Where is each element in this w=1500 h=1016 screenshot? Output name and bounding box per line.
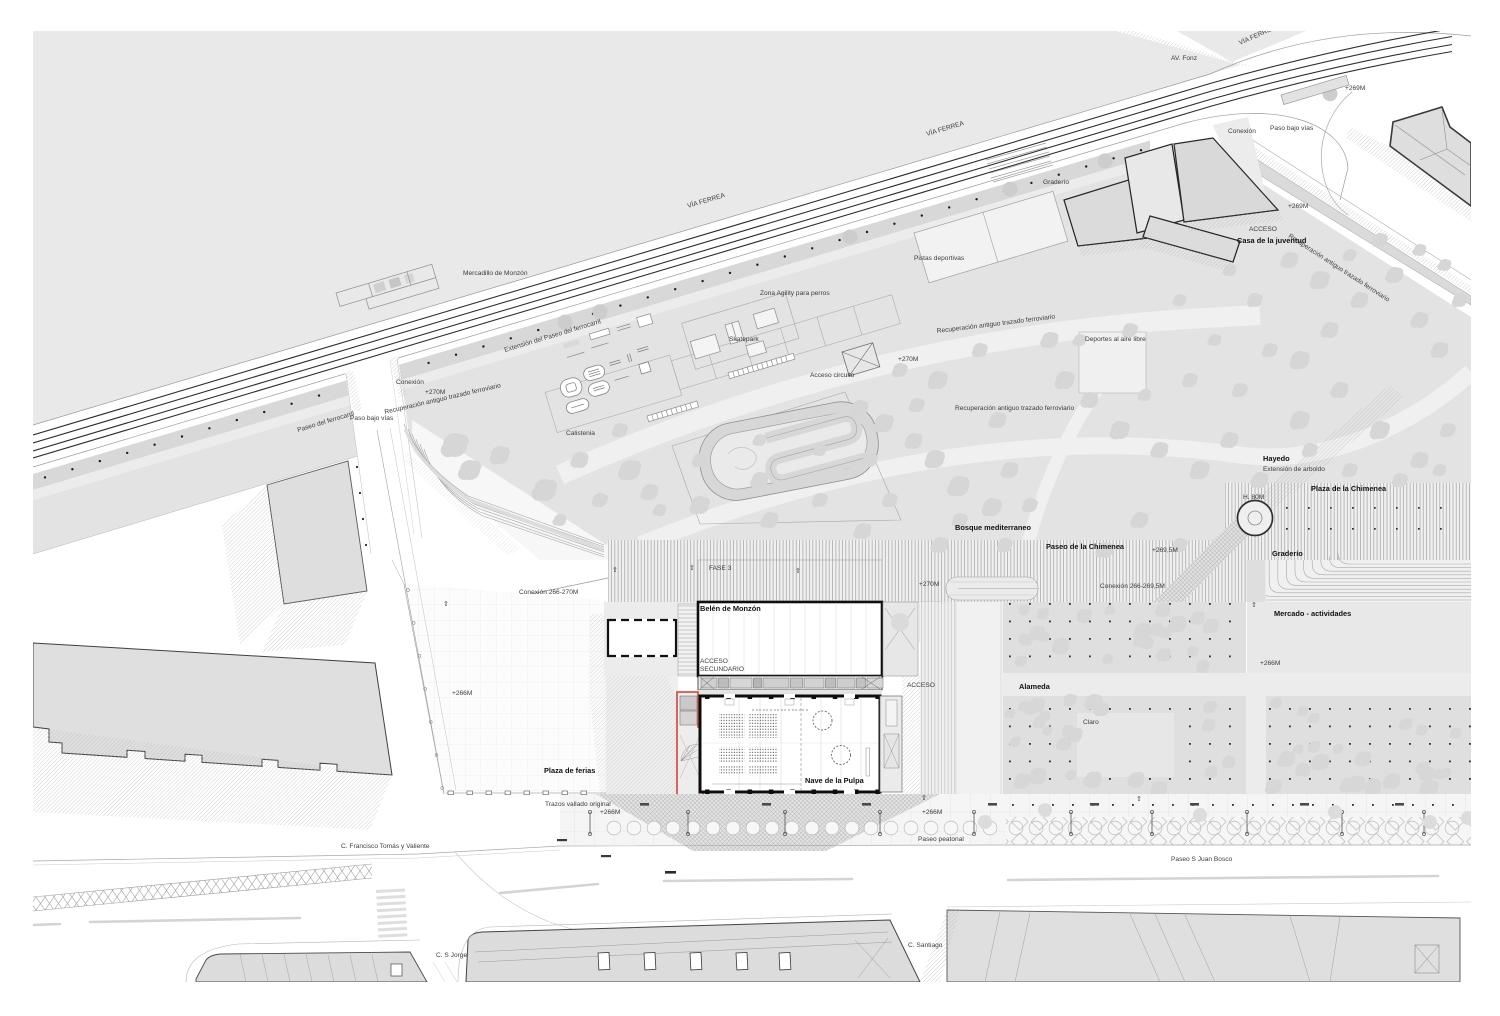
svg-text:Bosque mediterraneo: Bosque mediterraneo bbox=[955, 523, 1031, 532]
svg-text:Mercadillo de Monzón: Mercadillo de Monzón bbox=[463, 270, 528, 277]
svg-text:Skatepark: Skatepark bbox=[729, 336, 759, 343]
svg-text:Plaza de la Chimenea: Plaza de la Chimenea bbox=[1311, 484, 1387, 493]
svg-text:Hayedo: Hayedo bbox=[1263, 454, 1290, 463]
svg-text:⇧: ⇧ bbox=[921, 794, 927, 802]
svg-text:ACCESO: ACCESO bbox=[700, 658, 728, 665]
svg-text:⇧: ⇧ bbox=[612, 566, 618, 574]
svg-text:+270M: +270M bbox=[919, 581, 939, 588]
svg-text:+269,5M: +269,5M bbox=[1152, 547, 1178, 554]
svg-text:⇧: ⇧ bbox=[443, 600, 449, 608]
svg-text:Deportes al aire libre: Deportes al aire libre bbox=[1085, 336, 1146, 343]
svg-text:Acceso circuito: Acceso circuito bbox=[810, 372, 855, 379]
svg-text:+266M: +266M bbox=[600, 809, 620, 816]
svg-text:⇧: ⇧ bbox=[1251, 601, 1257, 609]
svg-text:Belén de Monzón: Belén de Monzón bbox=[700, 604, 761, 613]
svg-text:Paso bajo vías: Paso bajo vías bbox=[350, 415, 394, 422]
svg-text:SECUNDARIO: SECUNDARIO bbox=[700, 666, 744, 673]
svg-text:Extensión de arboldo: Extensión de arboldo bbox=[1263, 466, 1325, 473]
svg-text:+266M: +266M bbox=[452, 690, 472, 697]
svg-text:⇧: ⇧ bbox=[1136, 795, 1142, 803]
svg-text:+270M: +270M bbox=[898, 356, 918, 363]
svg-text:Conexión: Conexión bbox=[1228, 128, 1256, 135]
svg-text:Paseo de la Chimenea: Paseo de la Chimenea bbox=[1046, 542, 1125, 551]
svg-text:+266M: +266M bbox=[1260, 660, 1280, 667]
svg-text:C. Santiago: C. Santiago bbox=[908, 942, 943, 949]
svg-text:Graderío: Graderío bbox=[1043, 179, 1069, 186]
svg-text:Pistas deportivas: Pistas deportivas bbox=[914, 255, 965, 262]
svg-text:Conexión 266-270M: Conexión 266-270M bbox=[519, 589, 578, 596]
svg-text:H. 80M: H. 80M bbox=[1243, 494, 1264, 501]
svg-text:Calistenia: Calistenia bbox=[566, 430, 595, 437]
svg-text:Conexión 266-269,5M: Conexión 266-269,5M bbox=[1100, 583, 1165, 590]
svg-text:Paseo peatonal: Paseo peatonal bbox=[918, 836, 964, 843]
svg-text:FASE 3: FASE 3 bbox=[709, 565, 732, 572]
svg-text:⇧: ⇧ bbox=[689, 564, 695, 572]
svg-text:ACCESO: ACCESO bbox=[907, 682, 935, 689]
svg-text:Trazos vallado original: Trazos vallado original bbox=[545, 801, 611, 808]
svg-text:Alameda: Alameda bbox=[1019, 682, 1051, 691]
svg-text:ACCESO: ACCESO bbox=[1249, 226, 1277, 233]
svg-text:⇧: ⇧ bbox=[795, 567, 801, 575]
svg-text:Plaza de ferias: Plaza de ferias bbox=[544, 766, 595, 775]
svg-text:C. Francisco Tomás y Valiente: C. Francisco Tomás y Valiente bbox=[341, 843, 430, 850]
svg-text:AV. Fonz: AV. Fonz bbox=[1171, 55, 1197, 62]
svg-text:Recuperación antiguo trazado f: Recuperación antiguo trazado ferroviario bbox=[955, 405, 1074, 412]
svg-text:Paseo S Juan Bosco: Paseo S Juan Bosco bbox=[1171, 856, 1233, 863]
svg-text:Nave de la Pulpa: Nave de la Pulpa bbox=[805, 776, 865, 785]
svg-text:Claro: Claro bbox=[1083, 719, 1099, 726]
svg-text:+269M: +269M bbox=[1288, 203, 1308, 210]
svg-text:Paso bajo vías: Paso bajo vías bbox=[1270, 125, 1314, 132]
svg-text:Conexión: Conexión bbox=[396, 379, 424, 386]
svg-text:Zona Agility para perros: Zona Agility para perros bbox=[760, 290, 830, 297]
svg-text:+266M: +266M bbox=[922, 809, 942, 816]
svg-text:+269M: +269M bbox=[1345, 85, 1365, 92]
svg-text:Graderío: Graderío bbox=[1272, 549, 1303, 558]
svg-text:Mercado - actividades: Mercado - actividades bbox=[1274, 609, 1351, 618]
svg-text:C. S Jorge: C. S Jorge bbox=[436, 952, 467, 959]
